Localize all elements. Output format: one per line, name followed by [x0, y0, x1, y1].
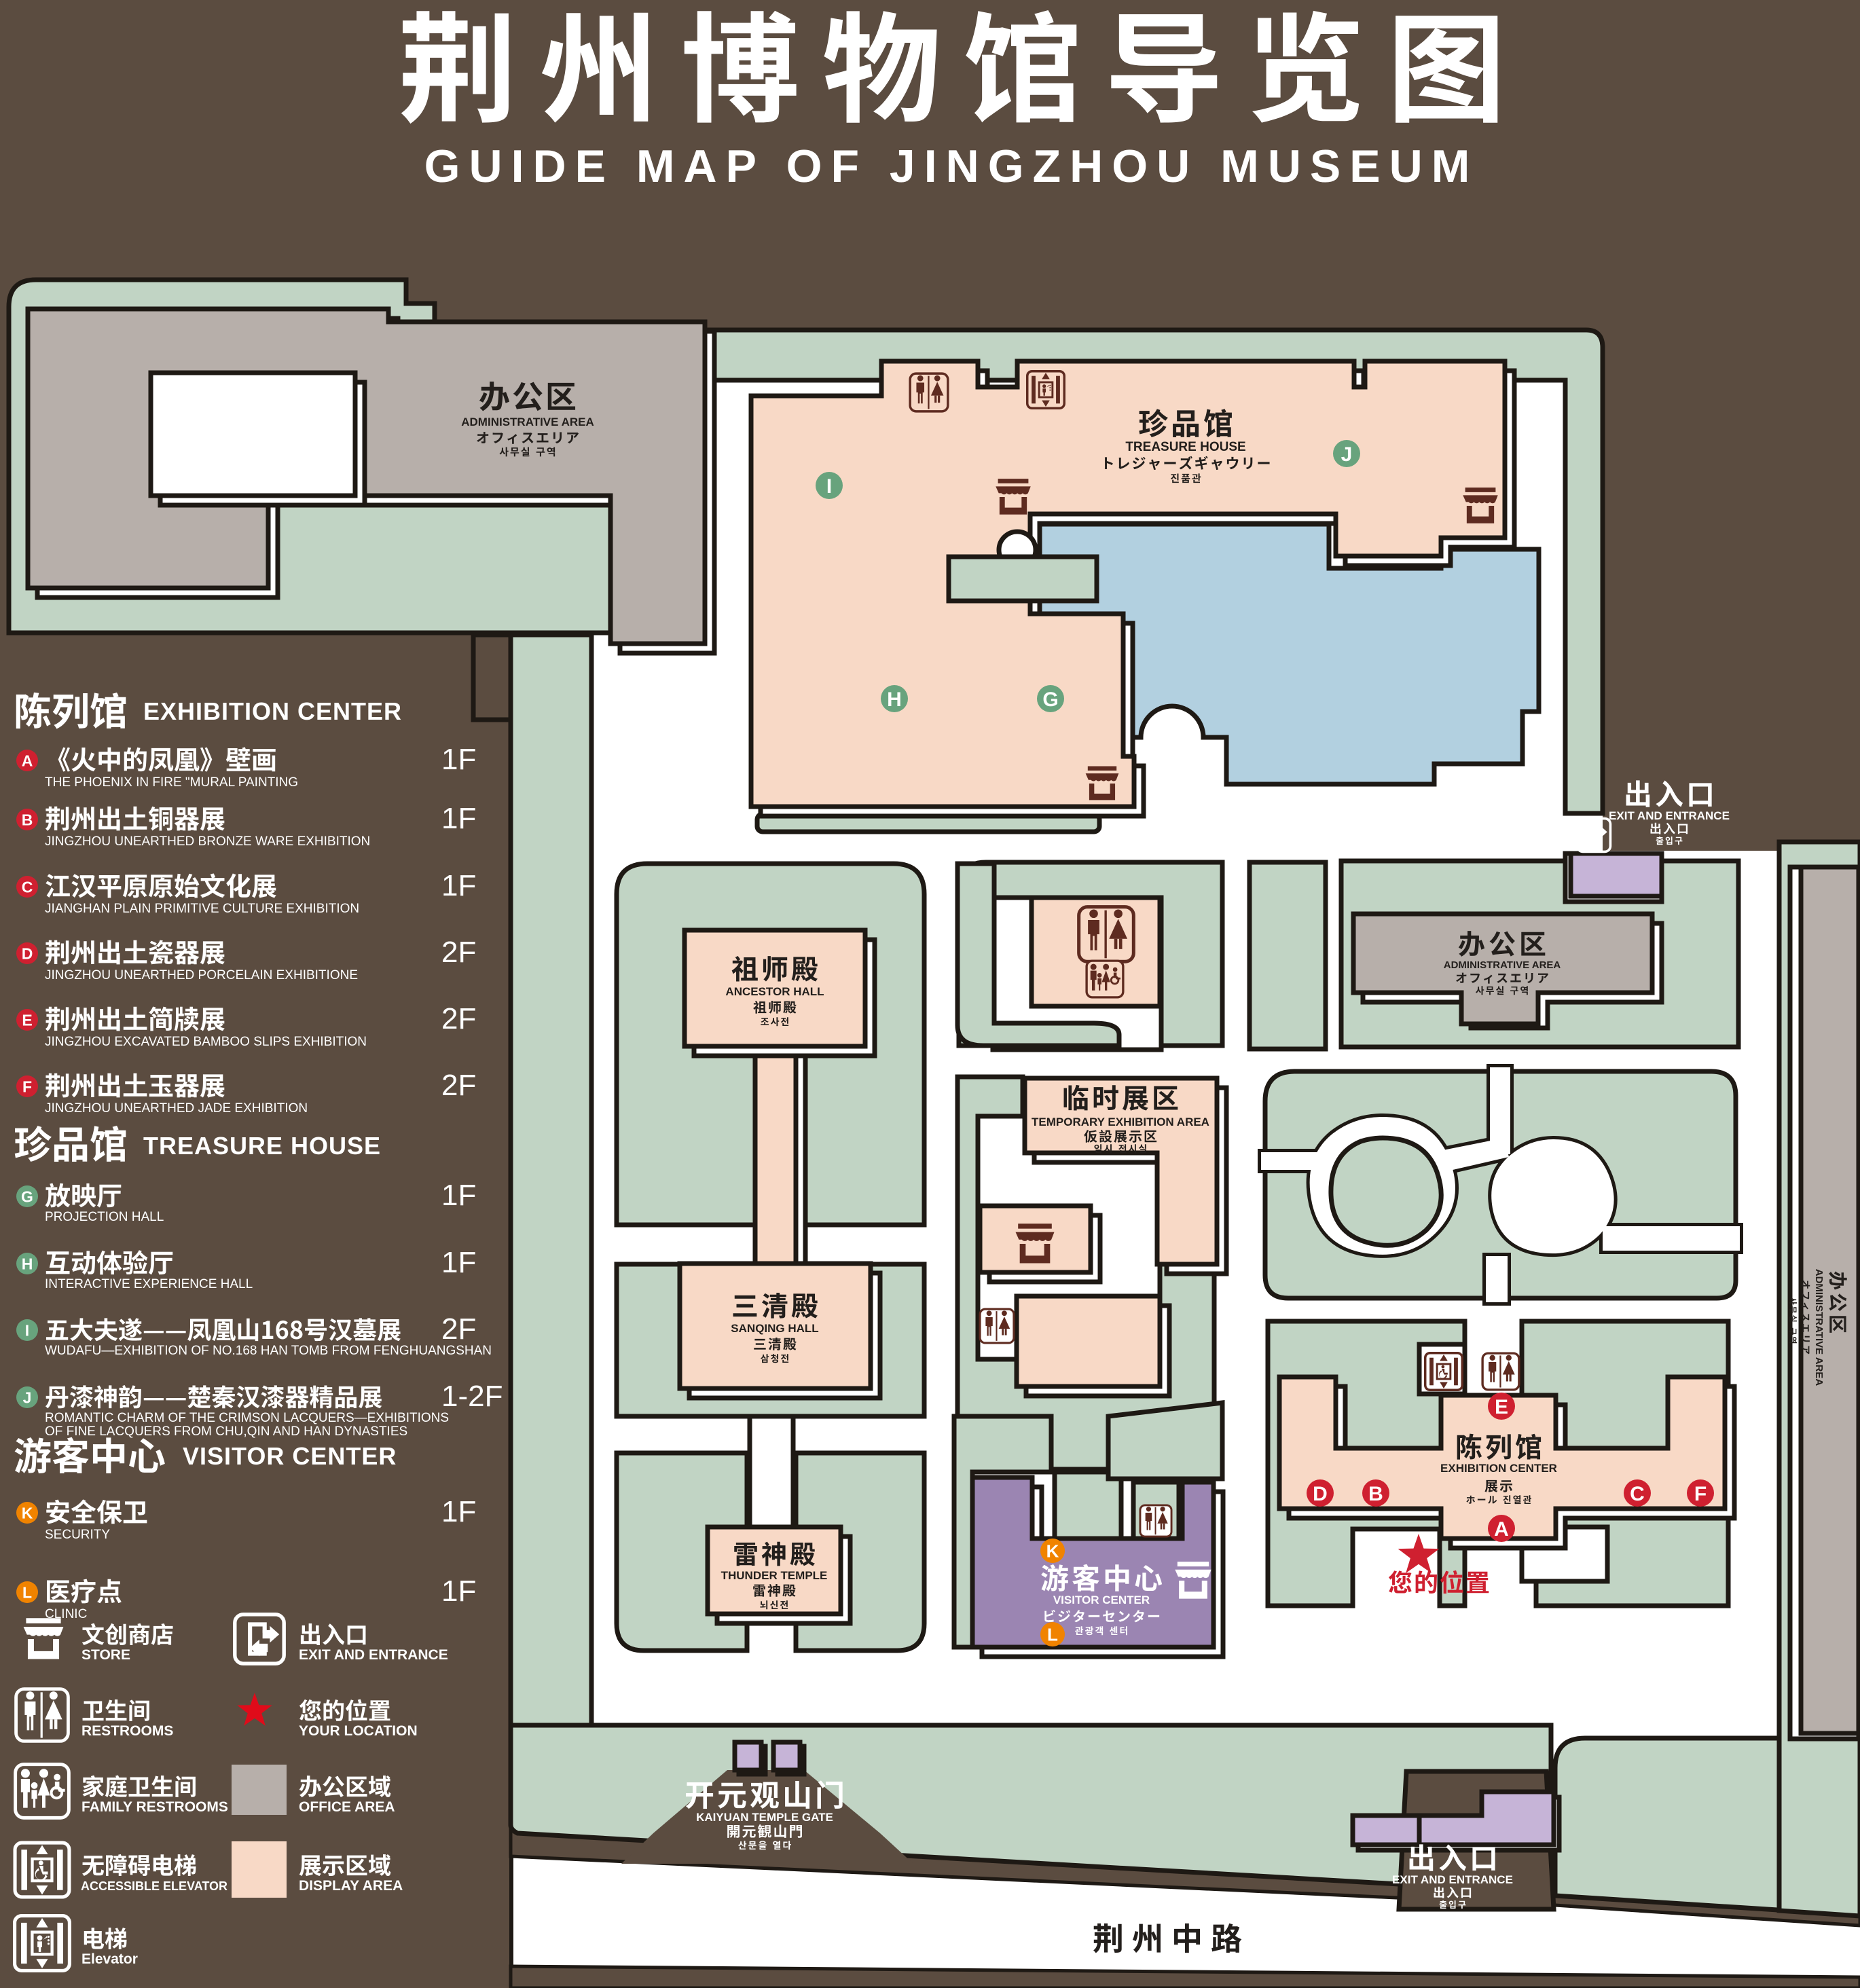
svg-text:EXIT AND ENTRANCE: EXIT AND ENTRANCE [299, 1647, 448, 1663]
svg-text:SANQING HALL: SANQING HALL [731, 1322, 818, 1335]
svg-text:2F: 2F [441, 936, 476, 969]
svg-text:B: B [22, 811, 33, 828]
svg-text:ANCESTOR HALL: ANCESTOR HALL [725, 985, 824, 998]
svg-text:JINGZHOU UNEARTHED BRONZE WARE: JINGZHOU UNEARTHED BRONZE WARE EXHIBITIO… [45, 834, 370, 849]
svg-text:STORE: STORE [81, 1647, 130, 1663]
svg-text:A: A [1494, 1518, 1509, 1541]
svg-text:ADMINISTRATIVE AREA: ADMINISTRATIVE AREA [1444, 959, 1561, 971]
svg-text:K: K [1046, 1541, 1059, 1561]
svg-text:1F: 1F [441, 802, 476, 835]
svg-text:ADMINISTRATIVE AREA: ADMINISTRATIVE AREA [1813, 1269, 1825, 1386]
svg-text:L: L [1047, 1624, 1058, 1644]
svg-text:PROJECTION HALL: PROJECTION HALL [45, 1210, 164, 1224]
svg-text:ADMINISTRATIVE AREA: ADMINISTRATIVE AREA [461, 416, 594, 428]
svg-text:DISPLAY AREA: DISPLAY AREA [299, 1878, 403, 1894]
svg-text:C: C [22, 878, 33, 896]
svg-text:TREASURE HOUSE: TREASURE HOUSE [1125, 440, 1245, 454]
svg-text:1F: 1F [441, 1179, 476, 1212]
svg-text:JIANGHAN PLAIN PRIMITIVE CULTU: JIANGHAN PLAIN PRIMITIVE CULTURE EXHIBIT… [45, 902, 359, 916]
svg-text:YOUR LOCATION: YOUR LOCATION [299, 1723, 418, 1739]
svg-text:SECURITY: SECURITY [45, 1528, 110, 1542]
svg-text:A: A [22, 752, 33, 769]
svg-text:B: B [1368, 1483, 1383, 1505]
svg-text:D: D [22, 944, 33, 962]
svg-text:2F: 2F [441, 1002, 476, 1035]
svg-text:THUNDER TEMPLE: THUNDER TEMPLE [721, 1569, 828, 1582]
svg-text:E: E [1495, 1396, 1508, 1418]
svg-text:1F: 1F [441, 1495, 476, 1528]
svg-text:G: G [21, 1188, 33, 1205]
svg-text:RESTROOMS: RESTROOMS [81, 1723, 173, 1739]
svg-text:I: I [826, 475, 832, 498]
svg-text:KAIYUAN TEMPLE GATE: KAIYUAN TEMPLE GATE [696, 1811, 833, 1824]
svg-text:1F: 1F [441, 869, 476, 902]
svg-text:JINGZHOU EXCAVATED BAMBOO SLIP: JINGZHOU EXCAVATED BAMBOO SLIPS EXHIBITI… [45, 1035, 367, 1049]
svg-text:FAMILY RESTROOMS: FAMILY RESTROOMS [81, 1799, 228, 1815]
svg-text:K: K [22, 1504, 33, 1522]
svg-text:E: E [22, 1011, 32, 1029]
svg-text:F: F [1694, 1483, 1707, 1505]
svg-text:2F: 2F [441, 1312, 476, 1346]
svg-text:WUDAFU—EXHIBITION OF NO.168 HA: WUDAFU—EXHIBITION OF NO.168 HAN TOMB FRO… [45, 1344, 492, 1358]
svg-text:EXIT AND ENTRANCE: EXIT AND ENTRANCE [1609, 809, 1730, 822]
svg-text:I: I [25, 1321, 29, 1339]
svg-text:EXIT AND ENTRANCE: EXIT AND ENTRANCE [1392, 1873, 1513, 1886]
svg-text:ROMANTIC CHARM OF THE CRIMSON: ROMANTIC CHARM OF THE CRIMSON LACQUERS—E… [45, 1411, 449, 1425]
svg-text:D: D [1313, 1483, 1328, 1505]
svg-text:H: H [22, 1255, 33, 1272]
svg-text:J: J [23, 1388, 32, 1406]
svg-text:ACCESSIBLE ELEVATOR: ACCESSIBLE ELEVATOR [81, 1879, 227, 1893]
svg-text:EXHIBITION CENTER: EXHIBITION CENTER [1440, 1462, 1557, 1475]
svg-text:GUIDE MAP OF JINGZHOU MUSEUM: GUIDE MAP OF JINGZHOU MUSEUM [424, 141, 1479, 192]
svg-text:EXHIBITION CENTER: EXHIBITION CENTER [143, 697, 402, 725]
svg-text:1F: 1F [441, 1246, 476, 1279]
svg-text:OF FINE LACQUERS FROM CHU,QIN: OF FINE LACQUERS FROM CHU,QIN AND HAN DY… [45, 1424, 407, 1439]
svg-text:Elevator: Elevator [81, 1951, 138, 1967]
svg-text:TEMPORARY EXHIBITION AREA: TEMPORARY EXHIBITION AREA [1032, 1116, 1209, 1128]
svg-text:2F: 2F [441, 1069, 476, 1102]
svg-text:OFFICE AREA: OFFICE AREA [299, 1799, 395, 1815]
svg-text:JINGZHOU UNEARTHED JADE EXHIBI: JINGZHOU UNEARTHED JADE EXHIBITION [45, 1101, 308, 1116]
svg-text:INTERACTIVE EXPERIENCE HALL: INTERACTIVE EXPERIENCE HALL [45, 1277, 253, 1291]
svg-text:TREASURE HOUSE: TREASURE HOUSE [143, 1132, 381, 1160]
svg-text:1F: 1F [441, 743, 476, 776]
svg-text:1F: 1F [441, 1575, 476, 1608]
svg-text:VISITOR CENTER: VISITOR CENTER [183, 1442, 397, 1470]
svg-text:JINGZHOU UNEARTHED PORCELAIN E: JINGZHOU UNEARTHED PORCELAIN EXHIBITIONE [45, 968, 358, 982]
svg-text:F: F [22, 1078, 32, 1095]
svg-text:J: J [1341, 443, 1353, 466]
svg-text:1-2F: 1-2F [441, 1380, 503, 1413]
svg-text:C: C [1630, 1483, 1645, 1505]
svg-text:THE PHOENIX IN FIRE "MURAL PAI: THE PHOENIX IN FIRE "MURAL PAINTING [45, 775, 298, 790]
svg-text:L: L [22, 1583, 32, 1601]
svg-text:VISITOR CENTER: VISITOR CENTER [1053, 1594, 1150, 1606]
svg-text:H: H [887, 688, 902, 711]
svg-text:G: G [1042, 688, 1058, 711]
